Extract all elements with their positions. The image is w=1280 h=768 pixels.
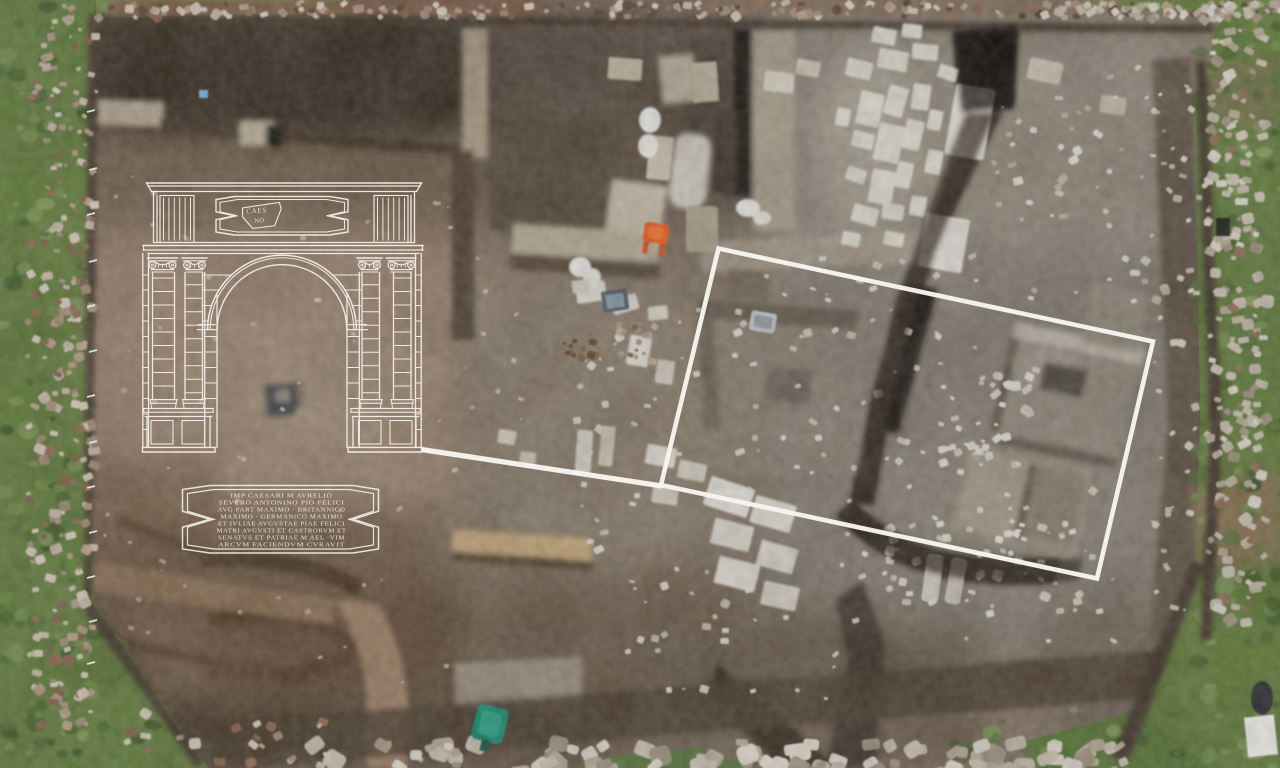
svg-text:MAXIMO · GERMANICO MAXIMO: MAXIMO · GERMANICO MAXIMO — [221, 514, 343, 521]
svg-text:SENATVS ET PATRIAE M AEL ·: SENATVS ET PATRIAE M AEL ·VIM — [218, 535, 345, 542]
svg-text:CAES: CAES — [246, 206, 267, 215]
svg-text:IMP CAESARI M AVRELIO: IMP CAESARI M AVRELIO — [231, 493, 333, 500]
svg-text:ARCVM FACIENDVM CVRAV: ARCVM FACIENDVM CVRAVIT — [218, 542, 345, 549]
svg-text:NO: NO — [254, 217, 264, 225]
svg-text:SEVERO ANTONINO PIO FELICI: SEVERO ANTONINO PIO FELICI — [219, 500, 345, 507]
svg-text:ET IVLIAE AVGVSTAE PIAE FELIC: ET IVLIAE AVGVSTAE PIAE FELICI — [218, 521, 345, 528]
svg-text:MATRI AVGVSTI ET CASTRORVM ET: MATRI AVGVSTI ET CASTRORVM ET — [217, 528, 347, 535]
svg-text:AVG PART MAXIMO · BRITANNICO: AVG PART MAXIMO · BRITANNICO — [218, 507, 346, 514]
